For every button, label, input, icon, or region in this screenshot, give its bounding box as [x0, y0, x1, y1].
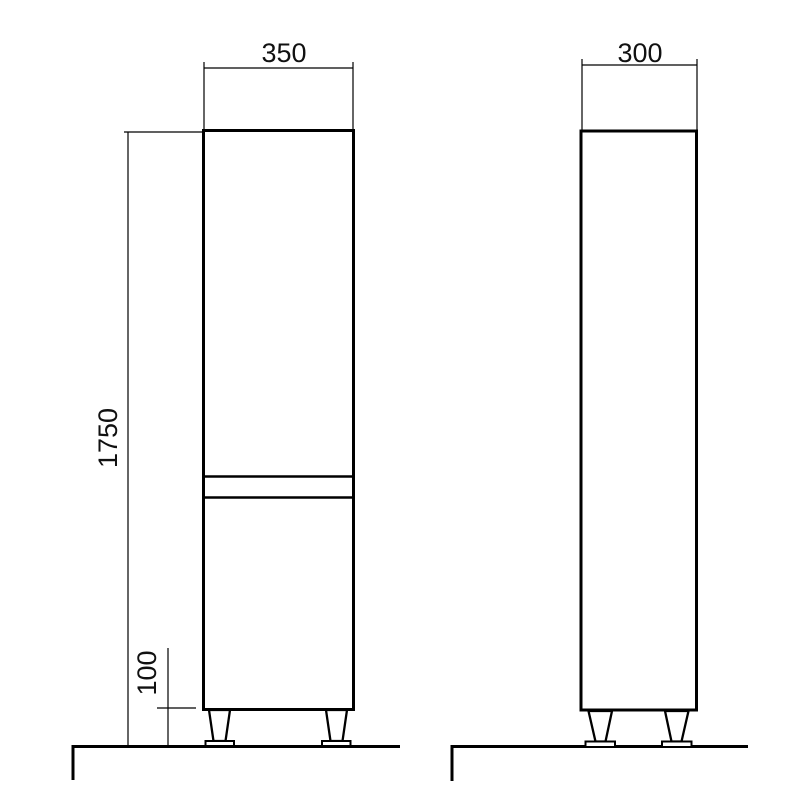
dim-label-side-depth: 300	[617, 38, 662, 68]
floor-line-left	[73, 747, 400, 781]
front-view-left-leg	[209, 710, 230, 741]
floor-line-right	[452, 747, 748, 782]
side-view-cabinet-body	[581, 131, 697, 710]
dimension-side-depth: 300	[582, 38, 697, 130]
technical-drawing-canvas: 350 300 1750 100	[0, 0, 800, 800]
dim-label-front-width: 350	[261, 38, 306, 68]
front-view-cabinet-body	[204, 131, 354, 710]
cabinet-two-view-drawing: 350 300 1750 100	[0, 0, 800, 800]
front-view	[204, 131, 354, 747]
side-view	[581, 131, 697, 747]
side-view-left-leg	[589, 711, 613, 742]
side-view-left-foot	[586, 742, 616, 748]
dimension-leg-height: 100	[132, 648, 196, 746]
front-view-left-foot	[206, 741, 235, 746]
front-view-right-leg	[326, 710, 347, 741]
dim-label-leg-height: 100	[132, 650, 162, 695]
dimension-front-width: 350	[204, 38, 353, 130]
side-view-right-leg	[665, 711, 689, 742]
dim-label-total-height: 1750	[93, 408, 123, 468]
side-view-right-foot	[662, 742, 692, 748]
floor-lines	[73, 747, 748, 782]
front-view-right-foot	[322, 741, 351, 746]
